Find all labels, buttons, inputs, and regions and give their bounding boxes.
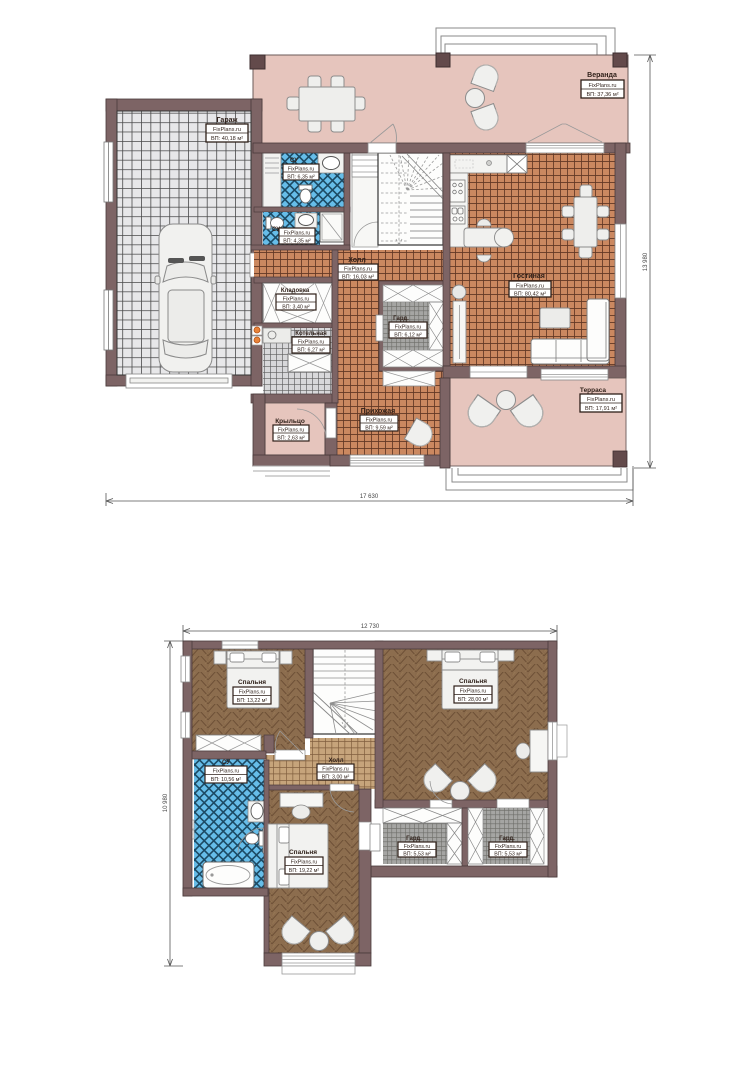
svg-text:ВП: 5,53 м²: ВП: 5,53 м² [403,852,431,858]
svg-text:Прихожая: Прихожая [361,408,396,415]
svg-text:FixPlans.ru: FixPlans.ru [516,284,544,290]
svg-text:FixPlans.ru: FixPlans.ru [587,397,615,403]
svg-text:Спальня: Спальня [238,679,266,686]
svg-text:ВП: 10,56 м²: ВП: 10,56 м² [211,777,242,783]
svg-text:Гараж: Гараж [217,117,239,124]
svg-text:12 730: 12 730 [361,624,380,630]
svg-text:ВП: 17,91 м²: ВП: 17,91 м² [585,406,617,412]
svg-text:ВП: 6,12 м²: ВП: 6,12 м² [394,333,422,339]
svg-text:ВП: 28,00 м²: ВП: 28,00 м² [458,697,489,703]
svg-text:ВП: 80,42 м²: ВП: 80,42 м² [514,292,546,298]
svg-text:FixPlans.ru: FixPlans.ru [213,769,240,775]
svg-text:13 980: 13 980 [643,252,649,271]
svg-text:ВП: 13,22 м²: ВП: 13,22 м² [237,698,268,704]
svg-text:Веранда: Веранда [587,72,617,79]
svg-text:FixPlans.ru: FixPlans.ru [395,325,422,331]
svg-text:Гард.: Гард. [499,836,515,842]
svg-text:СУ: СУ [290,158,298,164]
svg-text:ВП: 40,18 м²: ВП: 40,18 м² [211,136,243,142]
svg-text:FixPlans.ru: FixPlans.ru [366,418,393,424]
svg-text:Гостиная: Гостиная [513,273,545,280]
svg-text:Спальня: Спальня [289,849,317,856]
svg-text:FixPlans.ru: FixPlans.ru [344,267,372,273]
svg-text:Холл: Холл [348,257,366,264]
svg-text:ВП: 6,35 м²: ВП: 6,35 м² [287,175,315,181]
svg-text:ВП: 4,35 м²: ВП: 4,35 м² [283,239,311,245]
svg-text:FixPlans.ru: FixPlans.ru [239,690,266,696]
svg-text:ВП: 5,53 м²: ВП: 5,53 м² [494,852,522,858]
svg-text:ВП: 2,63 м²: ВП: 2,63 м² [277,436,305,442]
svg-text:Котельная: Котельная [295,331,327,337]
svg-text:ВП: 37,36 м²: ВП: 37,36 м² [586,92,618,98]
svg-text:17 630: 17 630 [360,494,379,500]
svg-text:FixPlans.ru: FixPlans.ru [278,428,305,434]
svg-text:Холл: Холл [328,758,343,764]
svg-text:FixPlans.ru: FixPlans.ru [291,860,318,866]
svg-text:FixPlans.ru: FixPlans.ru [322,767,349,773]
svg-text:ВП: 6,27 м²: ВП: 6,27 м² [297,348,325,354]
svg-text:ВП: 3,00 м²: ВП: 3,00 м² [322,775,350,781]
svg-text:СУ: СУ [222,760,230,766]
svg-text:ВП: 16,03 м²: ВП: 16,03 м² [342,275,374,281]
svg-text:FixPlans.ru: FixPlans.ru [283,297,310,303]
svg-text:10 980: 10 980 [163,793,169,812]
svg-text:Спальня: Спальня [459,678,487,685]
svg-text:Гард.: Гард. [393,316,409,322]
svg-text:ВП: 19,22 м²: ВП: 19,22 м² [289,868,320,874]
svg-text:FixPlans.ru: FixPlans.ru [404,844,431,850]
svg-text:FixPlans.ru: FixPlans.ru [589,83,617,89]
svg-text:Крыльцо: Крыльцо [275,418,305,425]
svg-text:ВП: 9,59 м²: ВП: 9,59 м² [365,426,393,432]
svg-text:FixPlans.ru: FixPlans.ru [284,231,311,237]
svg-text:ВП: 3,40 м²: ВП: 3,40 м² [282,305,310,311]
svg-text:FixPlans.ru: FixPlans.ru [460,689,487,695]
svg-text:Терраса: Терраса [580,387,607,394]
svg-text:FixPlans.ru: FixPlans.ru [213,127,241,133]
svg-text:Гард.: Гард. [406,836,422,842]
svg-text:FixPlans.ru: FixPlans.ru [288,167,315,173]
svg-text:Кладовка: Кладовка [281,288,310,294]
svg-text:FixPlans.ru: FixPlans.ru [298,340,325,346]
svg-text:FixPlans.ru: FixPlans.ru [495,844,522,850]
